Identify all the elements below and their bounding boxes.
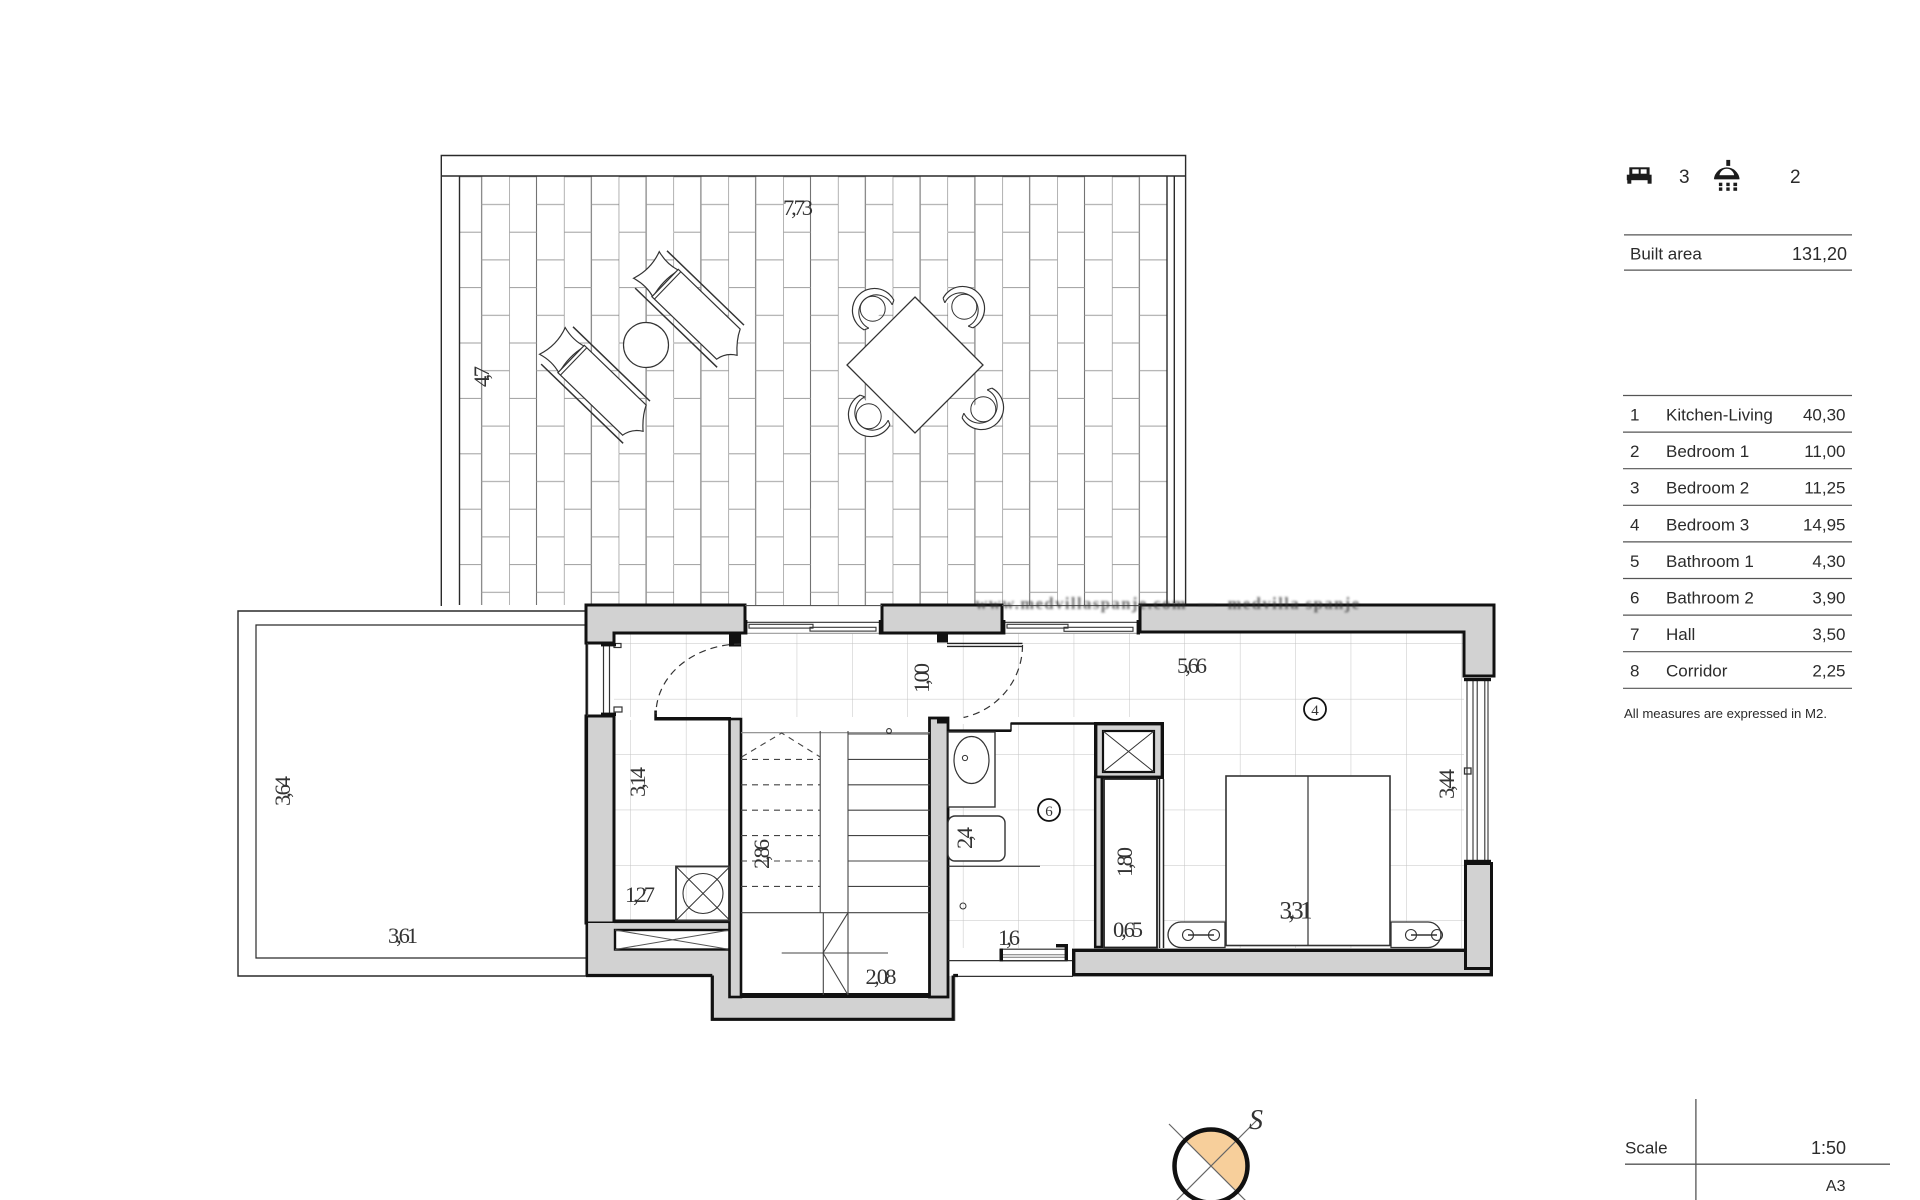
svg-text:5: 5	[1630, 552, 1639, 571]
svg-text:Bedroom 2: Bedroom 2	[1666, 479, 1749, 498]
svg-text:All measures are expressed in: All measures are expressed in M2.	[1624, 706, 1827, 721]
svg-text:A3: A3	[1826, 1178, 1846, 1195]
svg-text:6: 6	[1630, 589, 1639, 608]
svg-text:Built area: Built area	[1630, 245, 1702, 264]
svg-text:2,4: 2,4	[952, 827, 977, 849]
svg-text:3,90: 3,90	[1812, 589, 1845, 608]
svg-text:3: 3	[1630, 479, 1639, 498]
svg-text:14,95: 14,95	[1803, 515, 1846, 534]
svg-text:Kitchen-Living: Kitchen-Living	[1666, 406, 1773, 425]
svg-text:Hall: Hall	[1666, 625, 1695, 644]
svg-text:131,20: 131,20	[1792, 244, 1847, 264]
svg-text:www.medvillaspanje.com — med: www.medvillaspanje.com — medvilla spanje	[975, 594, 1360, 613]
svg-text:4: 4	[1630, 515, 1639, 534]
svg-text:Bathroom 2: Bathroom 2	[1666, 589, 1754, 608]
svg-text:7,73: 7,73	[783, 195, 813, 220]
svg-text:11,00: 11,00	[1804, 442, 1845, 461]
svg-text:3,14: 3,14	[625, 767, 650, 797]
svg-text:3,31: 3,31	[1280, 898, 1313, 925]
svg-text:Corridor: Corridor	[1666, 662, 1728, 681]
svg-text:S: S	[1249, 1105, 1263, 1136]
svg-text:Scale: Scale	[1625, 1139, 1668, 1158]
svg-text:3,44: 3,44	[1434, 769, 1459, 799]
svg-text:2: 2	[1790, 167, 1801, 188]
svg-text:1:50: 1:50	[1811, 1138, 1846, 1158]
svg-text:5,66: 5,66	[1177, 653, 1207, 678]
svg-text:1,6: 1,6	[998, 925, 1020, 950]
svg-text:2,86: 2,86	[749, 839, 774, 869]
svg-text:Bedroom 1: Bedroom 1	[1666, 442, 1749, 461]
svg-text:3,64: 3,64	[270, 776, 295, 806]
svg-text:Bathroom 1: Bathroom 1	[1666, 552, 1754, 571]
svg-text:2,08: 2,08	[866, 964, 897, 989]
svg-text:2,25: 2,25	[1812, 662, 1845, 681]
svg-text:3: 3	[1679, 167, 1690, 188]
svg-text:3,61: 3,61	[388, 923, 418, 948]
svg-text:1,80: 1,80	[1112, 847, 1137, 877]
svg-text:2: 2	[1630, 442, 1639, 461]
svg-text:1,00: 1,00	[909, 663, 934, 693]
svg-text:4,30: 4,30	[1812, 552, 1845, 571]
svg-text:0,65: 0,65	[1113, 917, 1143, 942]
svg-text:3,50: 3,50	[1812, 625, 1845, 644]
svg-text:7: 7	[1630, 625, 1639, 644]
svg-text:Bedroom 3: Bedroom 3	[1666, 515, 1749, 534]
svg-text:40,30: 40,30	[1803, 406, 1846, 425]
svg-text:4: 4	[1311, 703, 1319, 719]
svg-text:1: 1	[1630, 406, 1639, 425]
svg-text:4,7: 4,7	[469, 366, 494, 387]
svg-text:11,25: 11,25	[1804, 479, 1845, 498]
svg-text:1,27: 1,27	[625, 882, 655, 907]
svg-text:8: 8	[1630, 662, 1639, 681]
svg-text:6: 6	[1045, 804, 1053, 820]
